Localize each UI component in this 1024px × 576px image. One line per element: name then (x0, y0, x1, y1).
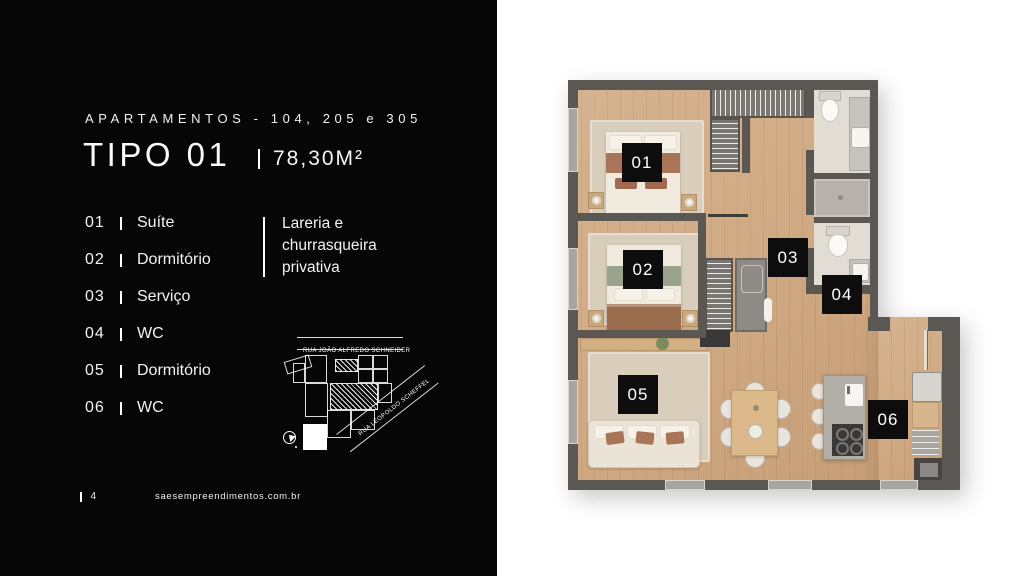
burner (850, 442, 863, 455)
room-label: Dormitório (137, 251, 211, 269)
bed-pillow (646, 288, 675, 301)
wall-suite-right (742, 118, 750, 173)
room-badge-06: 06 (868, 400, 908, 439)
lamp (592, 196, 601, 205)
shower-drain (838, 195, 843, 200)
window (568, 248, 578, 310)
window (880, 480, 918, 490)
room-number: 02 (85, 251, 120, 269)
room-legend-item: 02 Dormitório (85, 252, 211, 268)
floor-plan: 01 02 03 04 05 06 (568, 80, 960, 490)
area-group: 78,30M² (258, 147, 364, 171)
room-legend-item: 03 Serviço (85, 289, 211, 305)
kitchen-cabinet-inset (920, 463, 938, 477)
room-badge-05: 05 (618, 375, 658, 414)
wall-bath-divider-2 (814, 217, 870, 223)
sofa-accent-pillow (635, 431, 654, 445)
faucet (847, 386, 850, 394)
plant (656, 337, 669, 350)
room-label: Suíte (137, 214, 174, 232)
room-legend-list: 01 Suíte 02 Dormitório 03 Serviço 04 WC … (85, 215, 211, 437)
building-block (373, 355, 388, 369)
lamp (592, 314, 601, 323)
room-number: 03 (85, 288, 120, 306)
building-block (293, 363, 305, 383)
wall-bedroom2-living (568, 330, 700, 338)
feature-description: Lareria e churrasqueira privativa (282, 213, 396, 279)
street-line (297, 337, 403, 338)
table-decor (753, 405, 759, 411)
room-legend-item: 06 WC (85, 400, 211, 416)
laundry-door (741, 265, 763, 293)
water-heater (764, 298, 772, 322)
lamp (686, 314, 695, 323)
wall-right-lower (942, 325, 960, 490)
building-block (305, 383, 328, 417)
room-label: WC (137, 399, 164, 417)
kitchen-drawers (912, 430, 939, 456)
window (768, 480, 812, 490)
burner (850, 428, 863, 441)
room-number: 01 (85, 214, 120, 232)
info-panel: APARTAMENTOS - 104, 205 e 305 TIPO 01 78… (0, 0, 497, 576)
building-block (358, 369, 373, 383)
table-centerpiece (748, 424, 763, 439)
area-divider-bar (258, 149, 260, 169)
sofa-accent-pillow (666, 431, 685, 445)
wall-bath-left-b (806, 150, 814, 215)
room-badge-01: 01 (622, 143, 662, 182)
room-legend-item: 01 Suíte (85, 215, 211, 231)
room-number: 04 (85, 325, 120, 343)
window (568, 380, 578, 444)
toilet-bowl (828, 234, 848, 257)
room-label: WC (137, 325, 164, 343)
wall-bedroom2-right (698, 213, 706, 338)
highlighted-building (303, 424, 327, 450)
bed-pillow (614, 288, 643, 301)
room-legend-item: 05 Dormitório (85, 363, 211, 379)
separator-bar (120, 328, 122, 341)
building-block-hatched (335, 359, 358, 372)
service-wardrobe (705, 258, 733, 332)
sofa-accent-pillow (605, 431, 624, 445)
room-badge-04: 04 (822, 275, 862, 314)
compass-dot (295, 446, 297, 448)
separator-bar (80, 492, 82, 502)
room-label: Dormitório (137, 362, 211, 380)
fridge (912, 372, 942, 402)
toilet-bowl (821, 99, 839, 122)
separator-bar (120, 291, 122, 304)
room-badge-02: 02 (623, 250, 663, 289)
room-legend-item: 04 WC (85, 326, 211, 342)
bed-foot-throw (607, 304, 681, 331)
dining-table (731, 390, 778, 456)
room-number: 05 (85, 362, 120, 380)
building-block (305, 355, 327, 383)
sideboard (580, 338, 708, 351)
website-url: saesempreendimentos.com.br (155, 491, 301, 502)
page-indicator: 4 (80, 491, 96, 502)
kitchen-counter (912, 402, 939, 428)
closet-wardrobe (710, 118, 740, 172)
room-number: 06 (85, 399, 120, 417)
wall-bedrooms-divider (568, 213, 706, 221)
plan-type-title: TIPO 01 (83, 136, 230, 174)
area-value: 78,30M² (273, 147, 364, 171)
wall-bath-left-a (806, 90, 814, 118)
room-label: Serviço (137, 288, 190, 306)
lamp (685, 198, 694, 207)
separator-bar (120, 254, 122, 267)
entry-door-leaf (924, 330, 927, 370)
wall-top (568, 80, 878, 90)
separator-bar (120, 402, 122, 415)
building-block (373, 369, 388, 383)
room-badge-03: 03 (768, 238, 808, 277)
bathroom-sink (851, 127, 870, 148)
window (568, 108, 578, 172)
burner (836, 428, 849, 441)
window (665, 480, 705, 490)
closet-rack (710, 88, 806, 118)
building-block (358, 355, 373, 369)
feature-divider-line (263, 217, 265, 277)
apartments-subtitle: APARTAMENTOS - 104, 205 e 305 (85, 111, 422, 126)
wall-bath-divider-1 (814, 173, 870, 179)
wall-entry-left (868, 317, 890, 331)
street-line (297, 349, 403, 350)
site-location-map: RUA JOÃO ALFREDO SCHNEIDER RUA LEOPOLDO … (283, 332, 421, 462)
door-leaf (708, 214, 748, 217)
burner (836, 442, 849, 455)
separator-bar (120, 365, 122, 378)
separator-bar (120, 217, 122, 230)
page-number: 4 (91, 491, 97, 502)
